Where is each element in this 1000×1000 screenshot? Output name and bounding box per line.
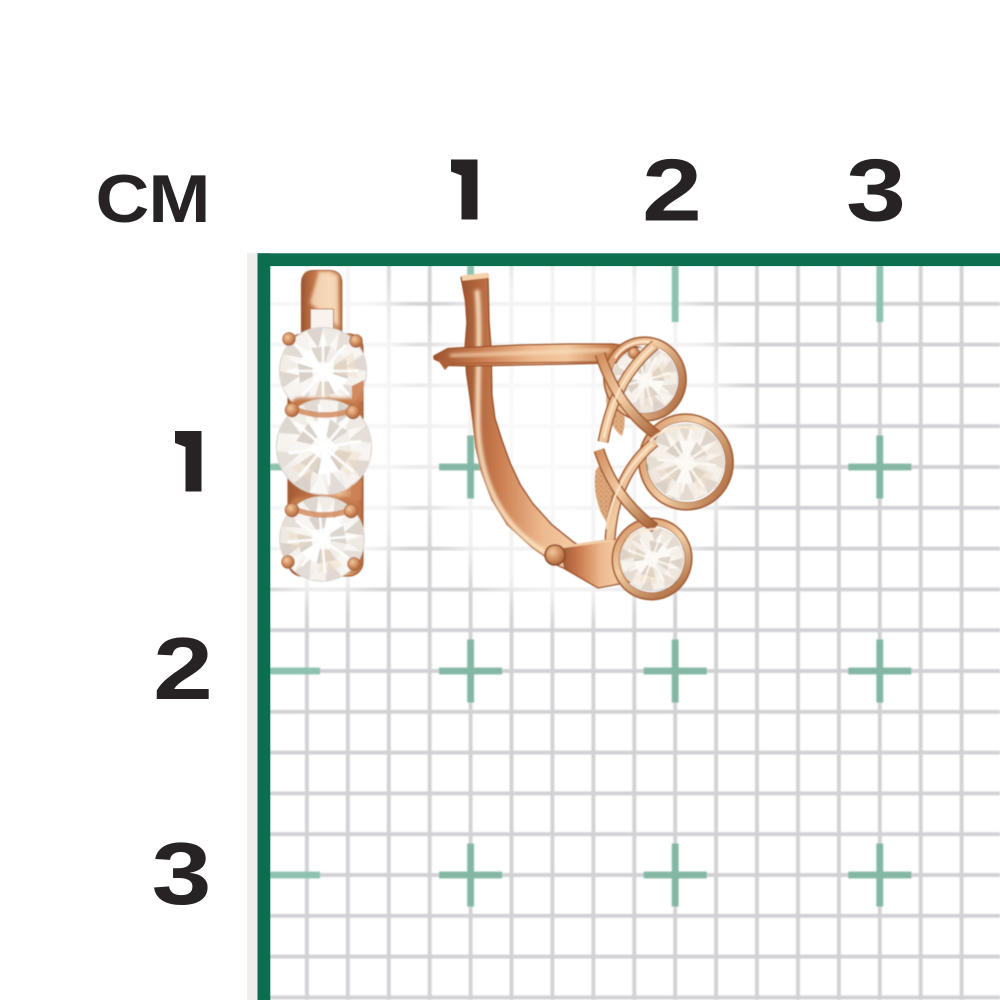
svg-text:3: 3 <box>152 824 212 923</box>
svg-text:2: 2 <box>153 619 213 718</box>
svg-text:2: 2 <box>642 141 702 240</box>
svg-text:3: 3 <box>846 141 906 240</box>
svg-text:СМ: СМ <box>96 161 211 237</box>
